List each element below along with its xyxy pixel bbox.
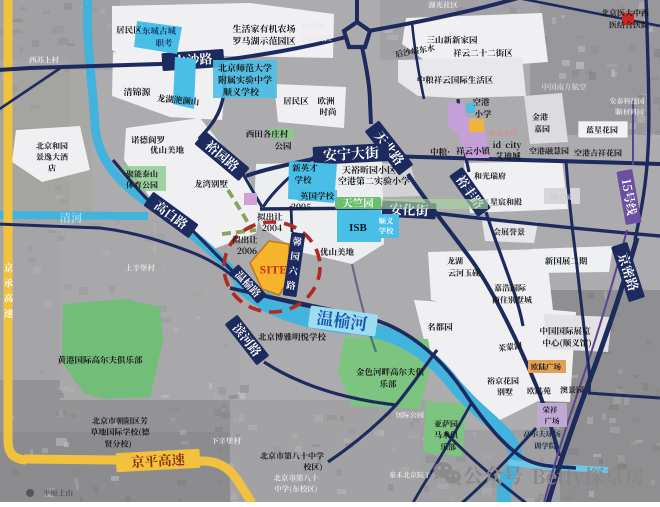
svg-text:SITE: SITE — [260, 265, 288, 277]
svg-text:ISB: ISB — [349, 222, 367, 234]
